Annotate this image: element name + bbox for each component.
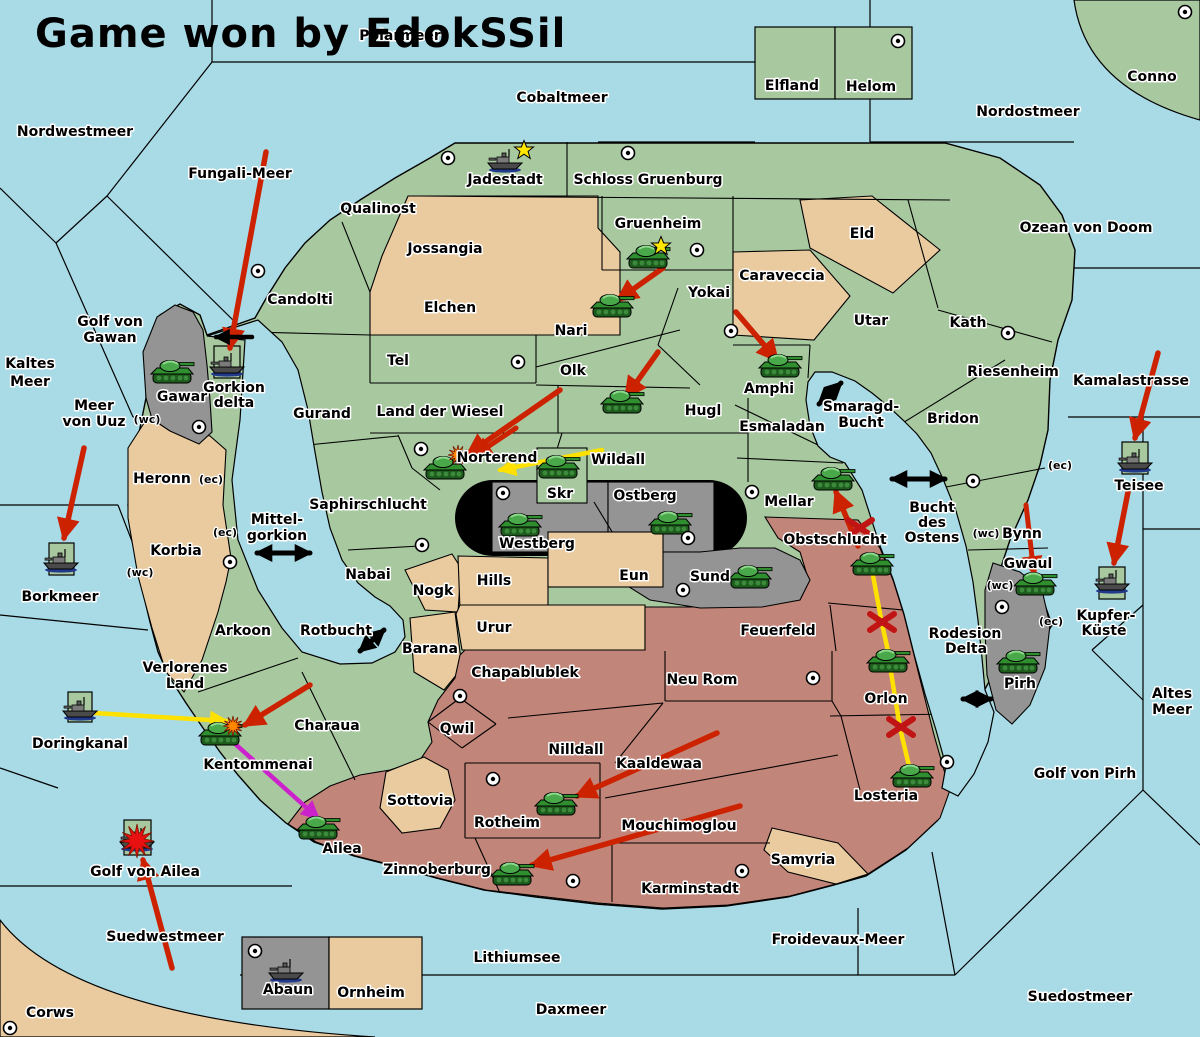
sea-label-altes-meer-2: Meer <box>1152 702 1192 718</box>
capital-marker <box>622 147 635 160</box>
label-gruenheim: Gruenheim <box>615 216 702 232</box>
label-skr: Skr <box>547 486 573 502</box>
label-utar: Utar <box>854 313 889 329</box>
label-ornheim: Ornheim <box>337 985 405 1001</box>
label-bridon: Bridon <box>927 411 979 427</box>
label-pirh: Pirh <box>1004 676 1036 692</box>
capital-marker <box>682 532 695 545</box>
label-urur: Urur <box>476 620 511 636</box>
sea-label-kupfer-kueste-1: Kupfer- <box>1077 608 1136 624</box>
label-bynn: Bynn <box>1002 526 1042 542</box>
sea-label-teisee: Teisee <box>1114 478 1163 494</box>
sea-label-rodesion-delta-1: Rodesion <box>929 626 1002 642</box>
capital-marker <box>1002 327 1015 340</box>
modifier-wc-bynn: (wc) <box>973 527 1000 540</box>
sea-label-borkmeer: Borkmeer <box>22 589 99 605</box>
label-sund: Sund <box>690 569 730 585</box>
label-westberg: Westberg <box>499 536 575 552</box>
sea-label-meer-von-uuz-2: von Uuz <box>62 414 125 430</box>
label-jossangia: Jossangia <box>406 241 482 257</box>
sea-label-golf-von-ailea: Golf von Ailea <box>90 864 200 880</box>
label-chapablublek: Chapablublek <box>471 665 579 681</box>
label-karminstadt: Karminstadt <box>641 881 739 897</box>
sea-label-kaltes-meer-2: Meer <box>10 374 50 390</box>
sea-label-daxmeer: Daxmeer <box>536 1002 607 1018</box>
label-gorkion-delta-1: Gorkion <box>203 380 265 396</box>
label-tel: Tel <box>387 353 409 369</box>
capital-marker <box>996 601 1009 614</box>
game-title: Game won by EdokSSil <box>35 11 566 57</box>
label-eun: Eun <box>619 568 649 584</box>
capital-marker <box>941 756 954 769</box>
modifier-wc-heronn: (wc) <box>134 413 161 426</box>
label-kath: Kath <box>950 315 987 331</box>
label-caraveccia: Caraveccia <box>739 268 825 284</box>
sea-label-kaltes-meer-1: Kaltes <box>5 356 55 372</box>
capital-marker <box>224 556 237 569</box>
label-eld: Eld <box>850 226 874 242</box>
capital-marker <box>442 152 455 165</box>
capital-marker <box>1179 6 1192 19</box>
label-esmaladan: Esmaladan <box>739 419 825 435</box>
sea-label-bucht-des-ostens-3: Ostens <box>905 530 960 546</box>
label-neu-rom: Neu Rom <box>666 672 737 688</box>
label-rotheim: Rotheim <box>474 815 540 831</box>
capital-marker <box>497 487 510 500</box>
label-hugl: Hugl <box>685 403 722 419</box>
capital-marker <box>746 486 759 499</box>
capital-marker <box>415 443 428 456</box>
label-qwil: Qwil <box>440 721 474 737</box>
capital-marker <box>416 539 429 552</box>
sea-label-froidevaux-meer: Froidevaux-Meer <box>772 932 905 948</box>
sea-label-bucht-des-ostens-2: des <box>918 515 946 531</box>
sea-label-fungali-meer: Fungali-Meer <box>188 166 292 182</box>
sea-label-nordwestmeer: Nordwestmeer <box>17 124 133 140</box>
sea-label-doringkanal: Doringkanal <box>32 736 128 752</box>
sea-label-golf-von-pirh: Golf von Pirh <box>1034 766 1136 782</box>
label-ostberg: Ostberg <box>613 488 676 504</box>
label-gorkion-delta-2: delta <box>214 395 254 411</box>
capital-marker <box>454 690 467 703</box>
capital-marker <box>736 865 749 878</box>
label-gawar: Gawar <box>157 389 207 405</box>
capital-marker <box>967 475 980 488</box>
label-zinnoberburg: Zinnoberburg <box>383 862 491 878</box>
sea-label-meer-von-uuz-1: Meer <box>74 398 114 414</box>
sea-label-smaragd-bucht-1: Smaragd- <box>823 399 900 415</box>
label-feuerfeld: Feuerfeld <box>740 623 815 639</box>
capital-marker <box>487 773 500 786</box>
label-arkoon: Arkoon <box>215 623 271 639</box>
modifier-wc-gwaul: (wc) <box>987 579 1014 592</box>
label-elfland: Elfland <box>765 78 819 94</box>
game-map-window: PolarmeerNordwestmeerFungali-MeerCobaltm… <box>0 0 1200 1037</box>
label-ailea: Ailea <box>322 841 361 857</box>
label-verlorenes-land-1: Verlorenes <box>142 660 227 676</box>
label-orlon: Orlon <box>864 691 907 707</box>
sea-label-bucht-des-ostens-1: Bucht <box>909 500 955 516</box>
label-amphi: Amphi <box>744 381 794 397</box>
sea-label-nordostmeer: Nordostmeer <box>976 104 1079 120</box>
modifier-ec-gwaul: (ec) <box>1039 615 1063 628</box>
sea-label-golf-von-gawan-1: Golf von <box>77 314 143 330</box>
capital-marker <box>725 325 738 338</box>
label-norterend: Norterend <box>457 450 538 466</box>
label-nogk: Nogk <box>413 583 454 599</box>
sea-label-rotbucht: Rotbucht <box>300 623 372 639</box>
label-gurand: Gurand <box>293 406 351 422</box>
label-candolti: Candolti <box>267 292 333 308</box>
capital-marker <box>567 875 580 888</box>
sea-label-suedostmeer: Suedostmeer <box>1028 989 1133 1005</box>
sea-label-kupfer-kueste-2: Küste <box>1081 623 1126 639</box>
sea-label-altes-meer-1: Altes <box>1152 686 1192 702</box>
sea-label-mittel-gorkion-1: Mittel- <box>251 512 303 528</box>
sea-label-kamalastrasse: Kamalastrasse <box>1073 373 1189 389</box>
label-korbia: Korbia <box>150 543 201 559</box>
sea-label-cobaltmeer: Cobaltmeer <box>516 90 607 106</box>
modifier-ec-korbia: (ec) <box>213 526 237 539</box>
modifier-ec-heronn: (ec) <box>199 473 223 486</box>
label-obstschlucht: Obstschlucht <box>783 532 887 548</box>
label-heronn: Heronn <box>133 471 191 487</box>
modifier-ec-bridon: (ec) <box>1048 459 1072 472</box>
label-sottovia: Sottovia <box>387 793 453 809</box>
sea-label-suedwestmeer: Suedwestmeer <box>106 929 224 945</box>
label-nari: Nari <box>555 323 588 339</box>
label-helom: Helom <box>846 79 896 95</box>
label-hills: Hills <box>477 573 511 589</box>
capital-marker <box>249 945 262 958</box>
label-riesenheim: Riesenheim <box>967 364 1059 380</box>
label-yokai: Yokai <box>687 285 730 301</box>
label-verlorenes-land-2: Land <box>166 676 204 692</box>
label-jadestadt: Jadestadt <box>466 172 543 188</box>
label-charaua: Charaua <box>294 718 359 734</box>
sea-label-conno: Conno <box>1127 69 1177 85</box>
capital-marker <box>4 1022 17 1035</box>
label-nilldall: Nilldall <box>548 742 603 758</box>
sea-label-corws: Corws <box>26 1005 74 1021</box>
label-olk: Olk <box>560 363 587 379</box>
sea-label-ozean-von-doom: Ozean von Doom <box>1020 220 1153 236</box>
capital-marker <box>892 35 905 48</box>
label-elchen: Elchen <box>424 300 476 316</box>
label-schloss-gruenburg: Schloss Gruenburg <box>573 172 722 188</box>
label-mouchimoglou: Mouchimoglou <box>621 818 736 834</box>
label-gwaul: Gwaul <box>1004 556 1053 572</box>
label-abaun: Abaun <box>263 982 313 998</box>
capital-marker <box>691 244 704 257</box>
game-map: PolarmeerNordwestmeerFungali-MeerCobaltm… <box>0 0 1200 1037</box>
label-land-der-wiesel: Land der Wiesel <box>377 404 504 420</box>
label-nabai: Nabai <box>345 567 390 583</box>
label-wildall: Wildall <box>591 452 645 468</box>
capital-marker <box>677 584 690 597</box>
capital-marker <box>512 356 525 369</box>
label-saphirschlucht: Saphirschlucht <box>309 497 427 513</box>
sea-label-rodesion-delta-2: Delta <box>945 641 987 657</box>
label-kaaldewaa: Kaaldewaa <box>616 756 702 772</box>
label-kentommenai: Kentommenai <box>203 757 312 773</box>
label-barana: Barana <box>402 641 458 657</box>
sea-label-smaragd-bucht-2: Bucht <box>838 415 884 431</box>
capital-marker <box>807 672 820 685</box>
modifier-wc-korbia: (wc) <box>127 566 154 579</box>
sea-label-lithiumsee: Lithiumsee <box>473 950 560 966</box>
sea-label-golf-von-gawan-2: Gawan <box>83 330 136 346</box>
label-mellar: Mellar <box>764 494 813 510</box>
capital-marker <box>252 265 265 278</box>
sea-label-mittel-gorkion-2: gorkion <box>247 528 307 544</box>
label-qualinost: Qualinost <box>340 201 416 217</box>
capital-marker <box>193 421 206 434</box>
label-losteria: Losteria <box>854 788 918 804</box>
label-samyria: Samyria <box>771 852 835 868</box>
